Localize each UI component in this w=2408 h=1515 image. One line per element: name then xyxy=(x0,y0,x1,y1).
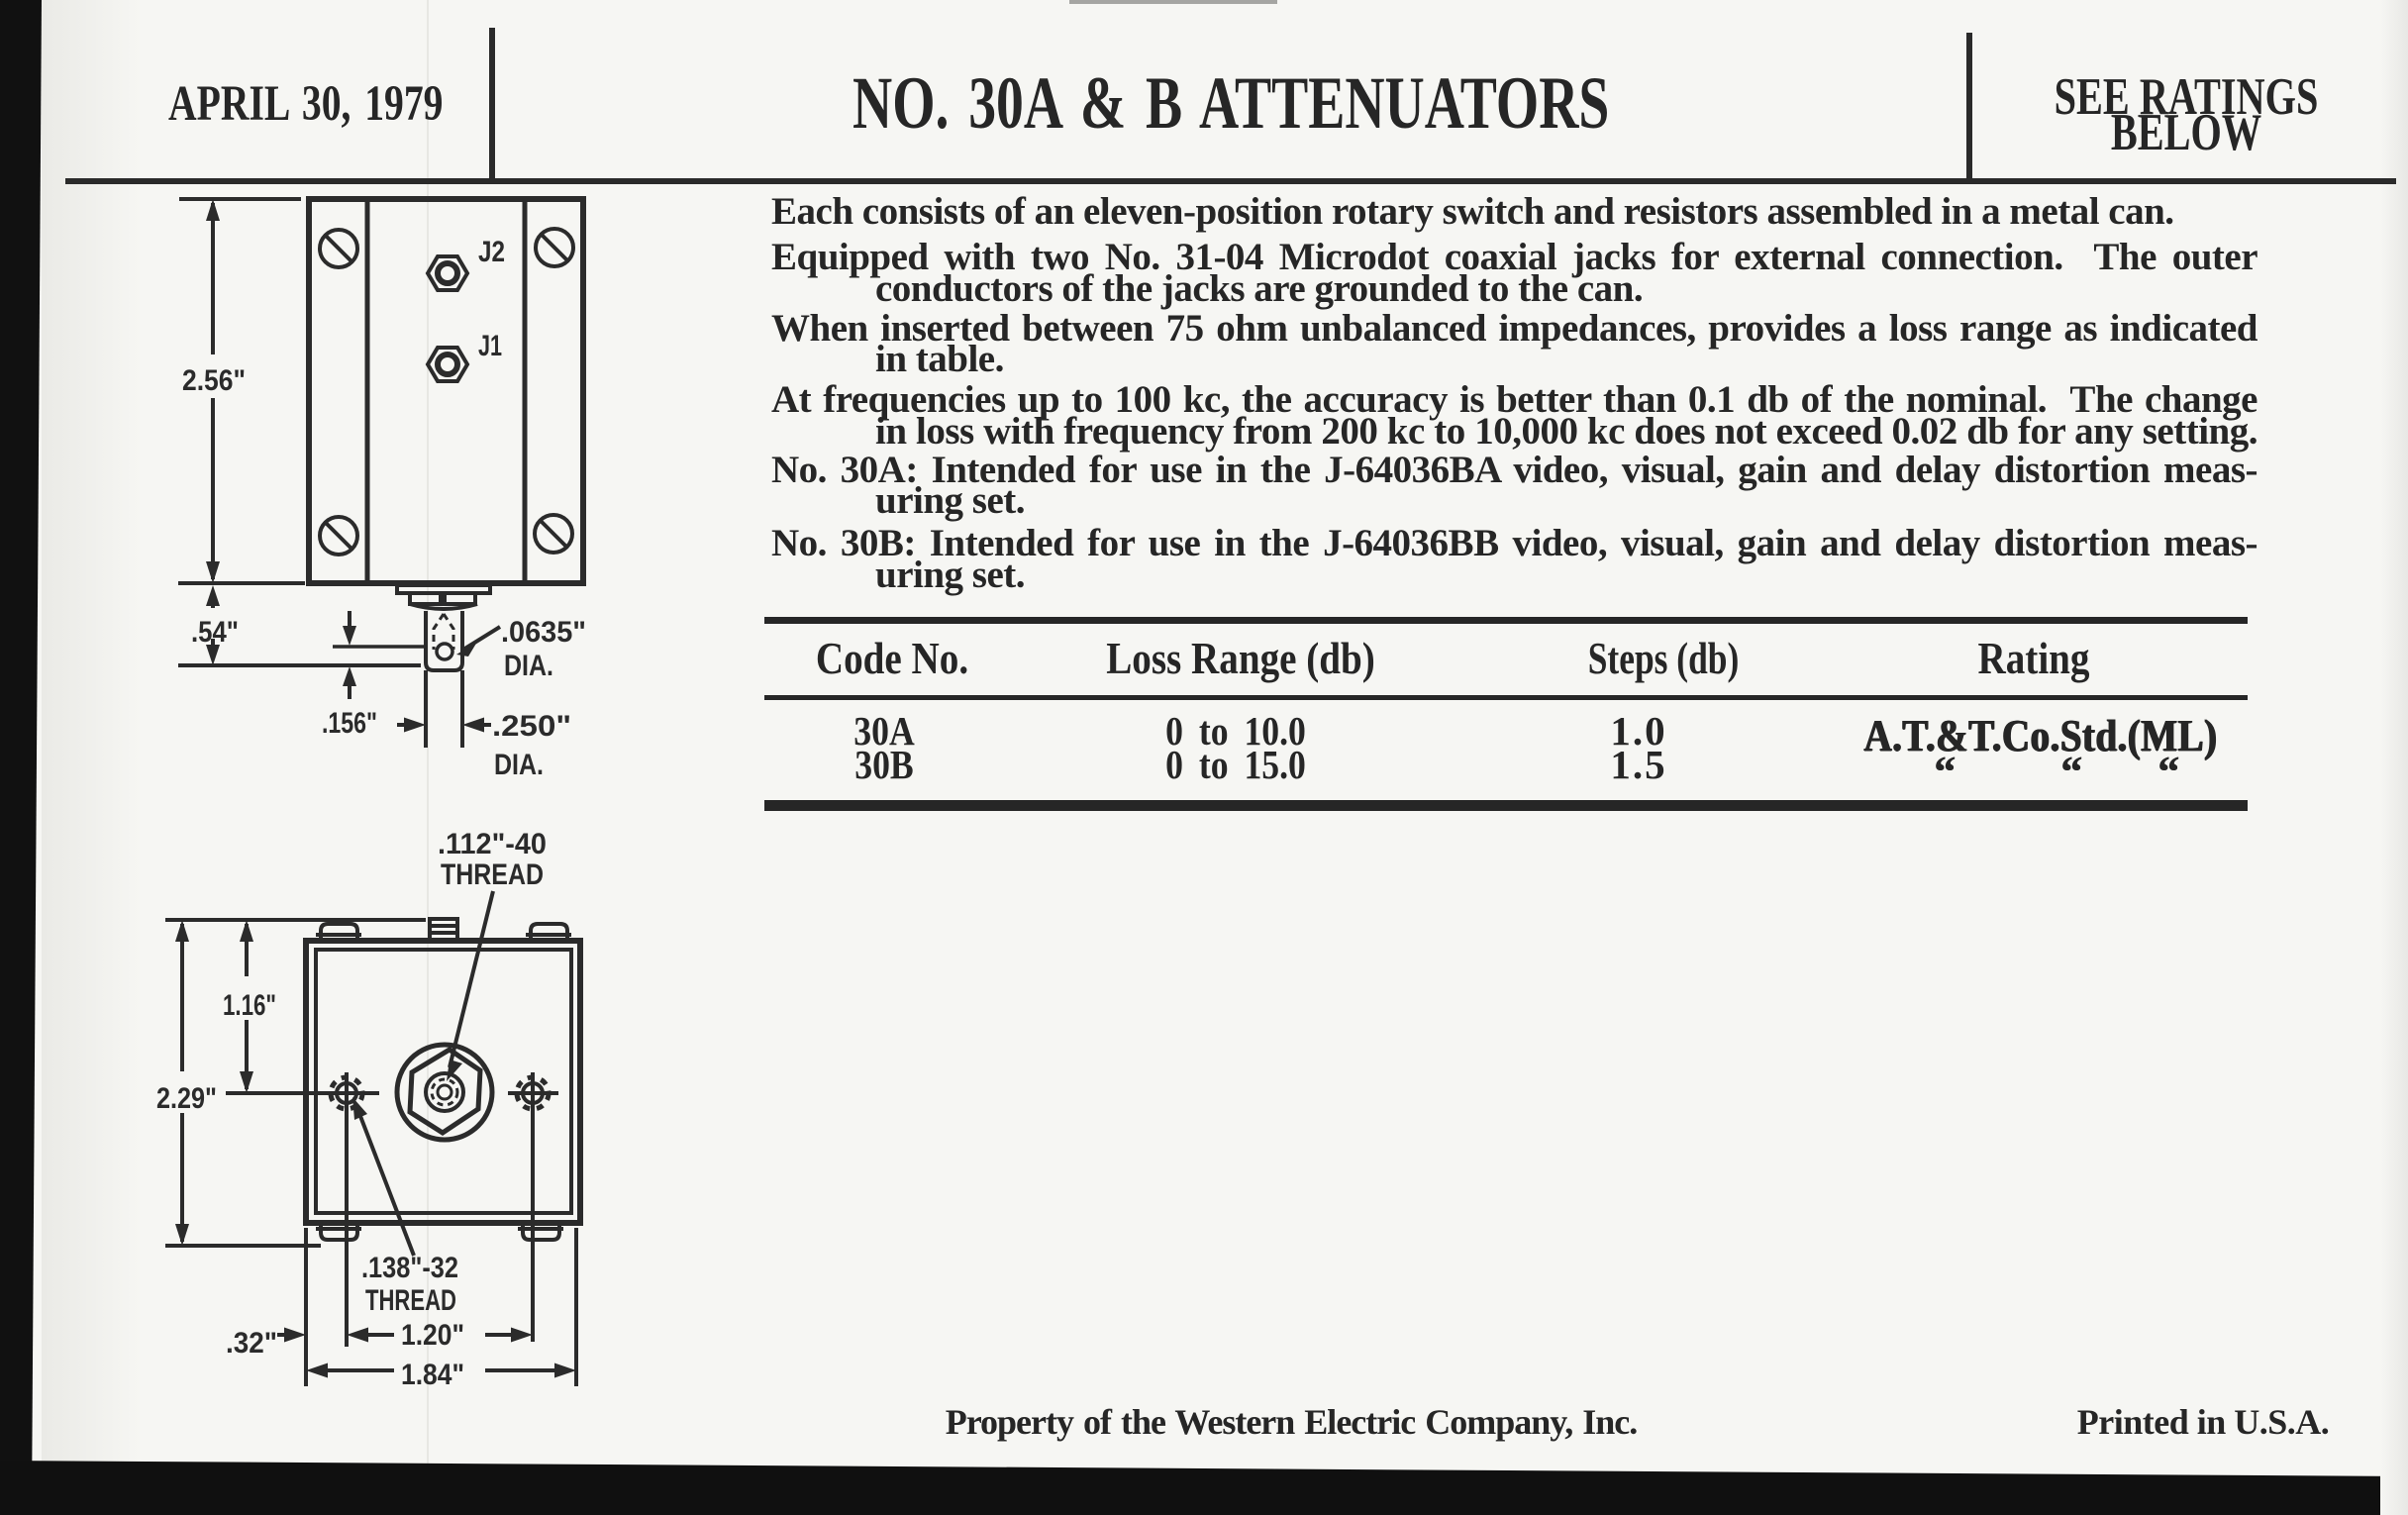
svg-text:2.56": 2.56" xyxy=(182,364,246,397)
svg-text:.0635": .0635" xyxy=(501,616,586,649)
svg-text:1.84": 1.84" xyxy=(401,1359,464,1391)
svg-text:THREAD: THREAD xyxy=(365,1284,456,1317)
svg-text:THREAD: THREAD xyxy=(441,858,544,891)
svg-text:2.29": 2.29" xyxy=(156,1082,217,1115)
svg-text:DIA.: DIA. xyxy=(494,749,544,781)
svg-text:1.20": 1.20" xyxy=(401,1319,464,1352)
svg-text:.250": .250" xyxy=(492,710,571,743)
svg-text:.112"-40: .112"-40 xyxy=(438,828,547,860)
svg-text:.32": .32" xyxy=(226,1327,277,1360)
svg-text:J2: J2 xyxy=(478,236,505,268)
svg-text:DIA.: DIA. xyxy=(504,650,553,682)
svg-text:.156": .156" xyxy=(322,707,377,740)
svg-text:1.16": 1.16" xyxy=(223,989,276,1022)
svg-text:.138"-32: .138"-32 xyxy=(361,1252,458,1284)
svg-text:J1: J1 xyxy=(478,330,502,362)
svg-text:.54": .54" xyxy=(191,616,239,649)
